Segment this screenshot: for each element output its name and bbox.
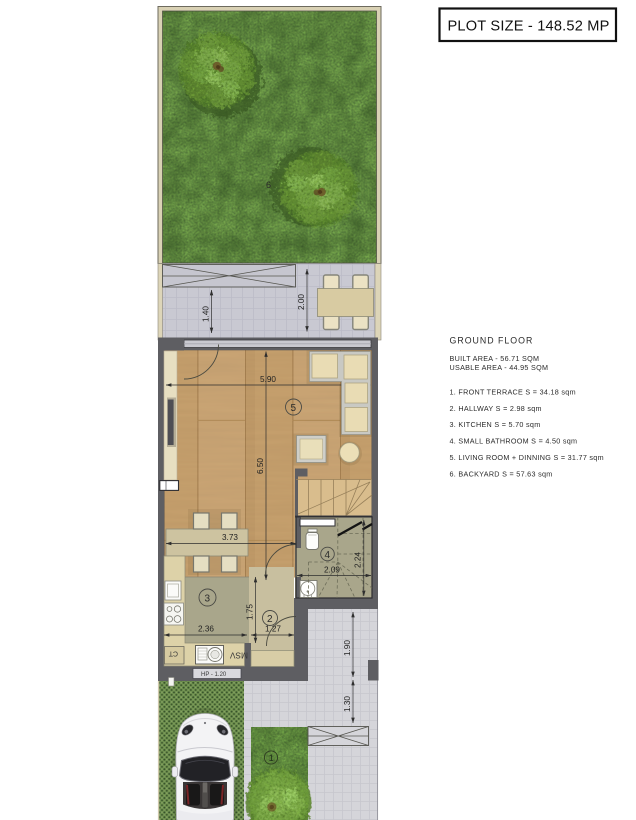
svg-text:HP - 1.20: HP - 1.20 [201, 672, 227, 678]
svg-text:1.40: 1.40 [202, 306, 211, 322]
svg-text:2.36: 2.36 [198, 625, 214, 634]
svg-text:1.90: 1.90 [343, 640, 352, 656]
svg-text:1: 1 [269, 753, 274, 763]
svg-text:2: 2 [267, 614, 273, 625]
svg-text:1. FRONT TERRACE S = 34.18 sqm: 1. FRONT TERRACE S = 34.18 sqm [450, 388, 576, 397]
svg-text:2. HALLWAY S = 2.98 sqm: 2. HALLWAY S = 2.98 sqm [450, 404, 542, 413]
svg-text:4. SMALL BATHROOM S = 4.50 sqm: 4. SMALL BATHROOM S = 4.50 sqm [450, 437, 578, 446]
svg-text:2.09: 2.09 [324, 566, 340, 575]
svg-text:2.00: 2.00 [297, 294, 306, 310]
svg-text:1.75: 1.75 [246, 604, 255, 620]
svg-text:BUILT AREA - 56.71 SQM: BUILT AREA - 56.71 SQM [450, 354, 540, 363]
svg-text:1.30: 1.30 [343, 696, 352, 712]
svg-text:6.50: 6.50 [256, 458, 265, 474]
svg-text:5.90: 5.90 [260, 375, 276, 384]
svg-text:GROUND FLOOR: GROUND FLOOR [450, 336, 534, 346]
svg-text:MSV: MSV [229, 651, 248, 661]
svg-text:PLOT SIZE - 148.52 MP: PLOT SIZE - 148.52 MP [448, 19, 610, 35]
svg-text:3: 3 [205, 594, 211, 605]
svg-text:1.27: 1.27 [265, 625, 281, 634]
svg-text:3. KITCHEN S = 5.70 sqm: 3. KITCHEN S = 5.70 sqm [450, 420, 541, 429]
svg-text:6: 6 [266, 180, 271, 190]
svg-text:4: 4 [325, 550, 331, 561]
svg-text:5: 5 [291, 403, 297, 414]
svg-text:3.73: 3.73 [222, 533, 238, 542]
svg-text:2.24: 2.24 [354, 552, 363, 568]
svg-text:CT: CT [168, 650, 178, 657]
svg-text:USABLE AREA - 44.95 SQM: USABLE AREA - 44.95 SQM [450, 363, 549, 372]
svg-text:5. LIVING ROOM + DINNING S = 3: 5. LIVING ROOM + DINNING S = 31.77 sqm [450, 453, 604, 462]
svg-text:6. BACKYARD S = 57.63 sqm: 6. BACKYARD S = 57.63 sqm [450, 469, 553, 478]
